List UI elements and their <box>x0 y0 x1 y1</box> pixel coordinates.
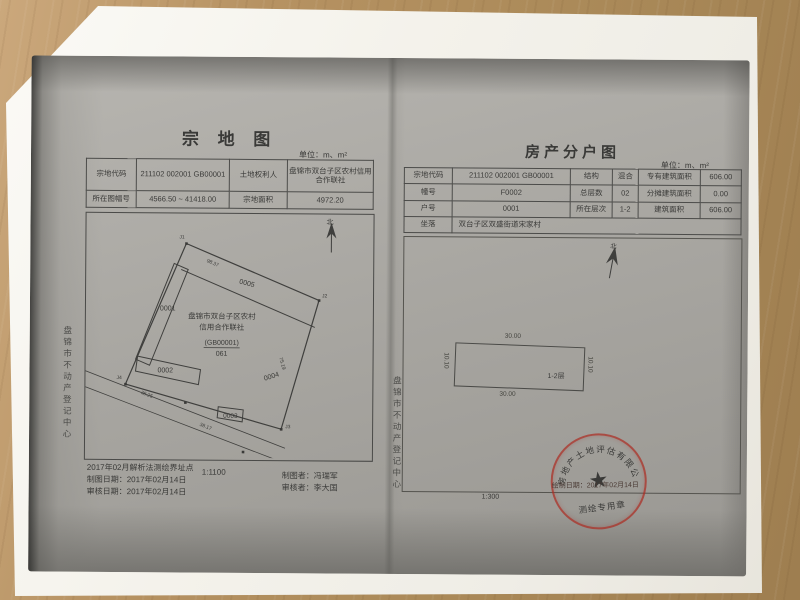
parcel-header-grid: 宗地代码 211102 002001 GB00001 土地权利人 盘锦市双台子区… <box>86 158 374 210</box>
plan-left-dim: 10.10 <box>443 352 450 368</box>
map-sub-code: 061 <box>216 351 228 358</box>
row3-value2: 1-2 <box>612 201 638 217</box>
plan-room-label: 1-2层 <box>547 371 564 381</box>
point-j2-label: J2 <box>322 293 328 299</box>
row2-value2: 02 <box>612 185 638 201</box>
area-value: 4972.20 <box>287 192 373 210</box>
measurement-top-label: 98.37 <box>206 258 220 269</box>
parcel-0003-label: 0003 <box>223 413 238 420</box>
row4-label1: 坐落 <box>404 216 452 233</box>
parcel-map-drawing: 北 <box>84 212 375 462</box>
stamp-bottom-text: 测绘专用章 <box>578 499 626 515</box>
row2-label1: 幢号 <box>404 184 452 201</box>
sheet-no-value: 4566.50 ~ 41418.00 <box>136 191 229 209</box>
map-parcel-code: (GB00001) <box>205 340 239 347</box>
row4-value1: 双台子区双盛街道宋家村 <box>452 217 741 235</box>
point-j3-label: J3 <box>285 424 291 430</box>
row3-label1: 户号 <box>404 200 452 217</box>
row3-value1: 0001 <box>452 200 570 217</box>
subdivision-table: 宗地代码 211102 002001 GB00001 结构 混合 专有建筑面积 … <box>403 167 740 235</box>
area-label: 宗地面积 <box>229 191 287 208</box>
right-registry-side-text: 盘锦市不动产登记中心 <box>391 376 404 511</box>
row1-value3: 606.00 <box>700 170 741 187</box>
plan-bottom-dim: 30.00 <box>499 391 515 398</box>
parcel-0001-shape <box>136 263 189 365</box>
parcel-map-title: 宗 地 图 <box>86 124 373 151</box>
map-owner-line2: 信用合作联社 <box>199 322 245 332</box>
subdivision-scale: 1:300 <box>482 494 500 501</box>
plan-right-dim: 10.10 <box>586 356 593 372</box>
row3-label3: 建筑面积 <box>638 202 700 219</box>
row3-value3: 606.00 <box>700 202 741 219</box>
left-registry-side-text: 盘锦市不动产登记中心 <box>61 326 74 476</box>
row1-label3: 专有建筑面积 <box>638 169 700 186</box>
parcel-0002-label: 0002 <box>157 367 173 374</box>
owner-label: 土地权利人 <box>229 159 287 191</box>
row1-value1: 211102 002001 GB00001 <box>452 168 570 185</box>
review-date: 审核日期：2017年02月14日 <box>87 486 187 498</box>
parcel-0001-label: 0001 <box>160 305 176 312</box>
north-arrow-icon: 北 <box>326 218 336 252</box>
photocopy-wrapper: 宗 地 图 单位：m、m² 宗地代码 211102 002001 GB00001… <box>0 0 800 600</box>
map-owner-line1: 盘锦市双台子区农村 <box>188 311 256 321</box>
row1-label2: 结构 <box>570 169 612 186</box>
north-label-right: 北 <box>610 242 618 251</box>
sheet-no-label: 所在图幅号 <box>86 190 136 207</box>
row2-value1: F0002 <box>452 184 570 201</box>
row3-label2: 所在层次 <box>570 201 612 218</box>
plan-top-dim: 30.00 <box>505 333 521 340</box>
parcel-0004-label: 0004 <box>263 371 280 382</box>
north-label: 北 <box>327 218 334 226</box>
parcel-header-table: 宗地代码 211102 002001 GB00001 土地权利人 盘锦市双台子区… <box>86 158 373 210</box>
drafter-name: 制图者：冯瑞军 <box>282 470 338 481</box>
parcel-outer-boundary <box>125 243 319 429</box>
road-line-1 <box>85 371 286 448</box>
parcel-0005-label: 0005 <box>238 279 255 290</box>
row2-label2: 总层数 <box>570 185 612 202</box>
owner-value: 盘锦市双台子区农村信用合作联社 <box>287 160 373 193</box>
photo-scene: 宗 地 图 单位：m、m² 宗地代码 211102 002001 GB00001… <box>0 0 800 600</box>
floor-plan-rectangle <box>454 342 586 391</box>
road-line-2 <box>85 387 277 459</box>
row1-label1: 宗地代码 <box>404 168 452 185</box>
row2-label3: 分摊建筑面积 <box>638 185 700 202</box>
parcel-map-svg: 北 <box>85 213 372 459</box>
point-j4-label: J4 <box>116 375 122 381</box>
row1-value2: 混合 <box>612 169 638 185</box>
survey-note: 2017年02月解析法测绘界址点 <box>87 462 194 474</box>
north-arrow-icon-right: 北 <box>603 242 621 280</box>
draw-date: 制图日期：2017年02月14日 <box>87 474 187 486</box>
point-j1-label: J1 <box>179 234 185 240</box>
reviewer-name: 审核者：李大国 <box>282 482 338 493</box>
parcel-map-scale: 1:1100 <box>202 468 226 477</box>
stamp-date-text: 绘制日期：2017年02月14日 <box>552 480 639 491</box>
parcel-code-value: 211102 002001 GB00001 <box>136 159 229 192</box>
parcel-code-label: 宗地代码 <box>86 158 136 190</box>
subdivision-grid: 宗地代码 211102 002001 GB00001 结构 混合 专有建筑面积 … <box>403 167 741 235</box>
row2-value3: 0.00 <box>700 186 741 203</box>
measurement-right-label: 75.19 <box>277 357 286 371</box>
